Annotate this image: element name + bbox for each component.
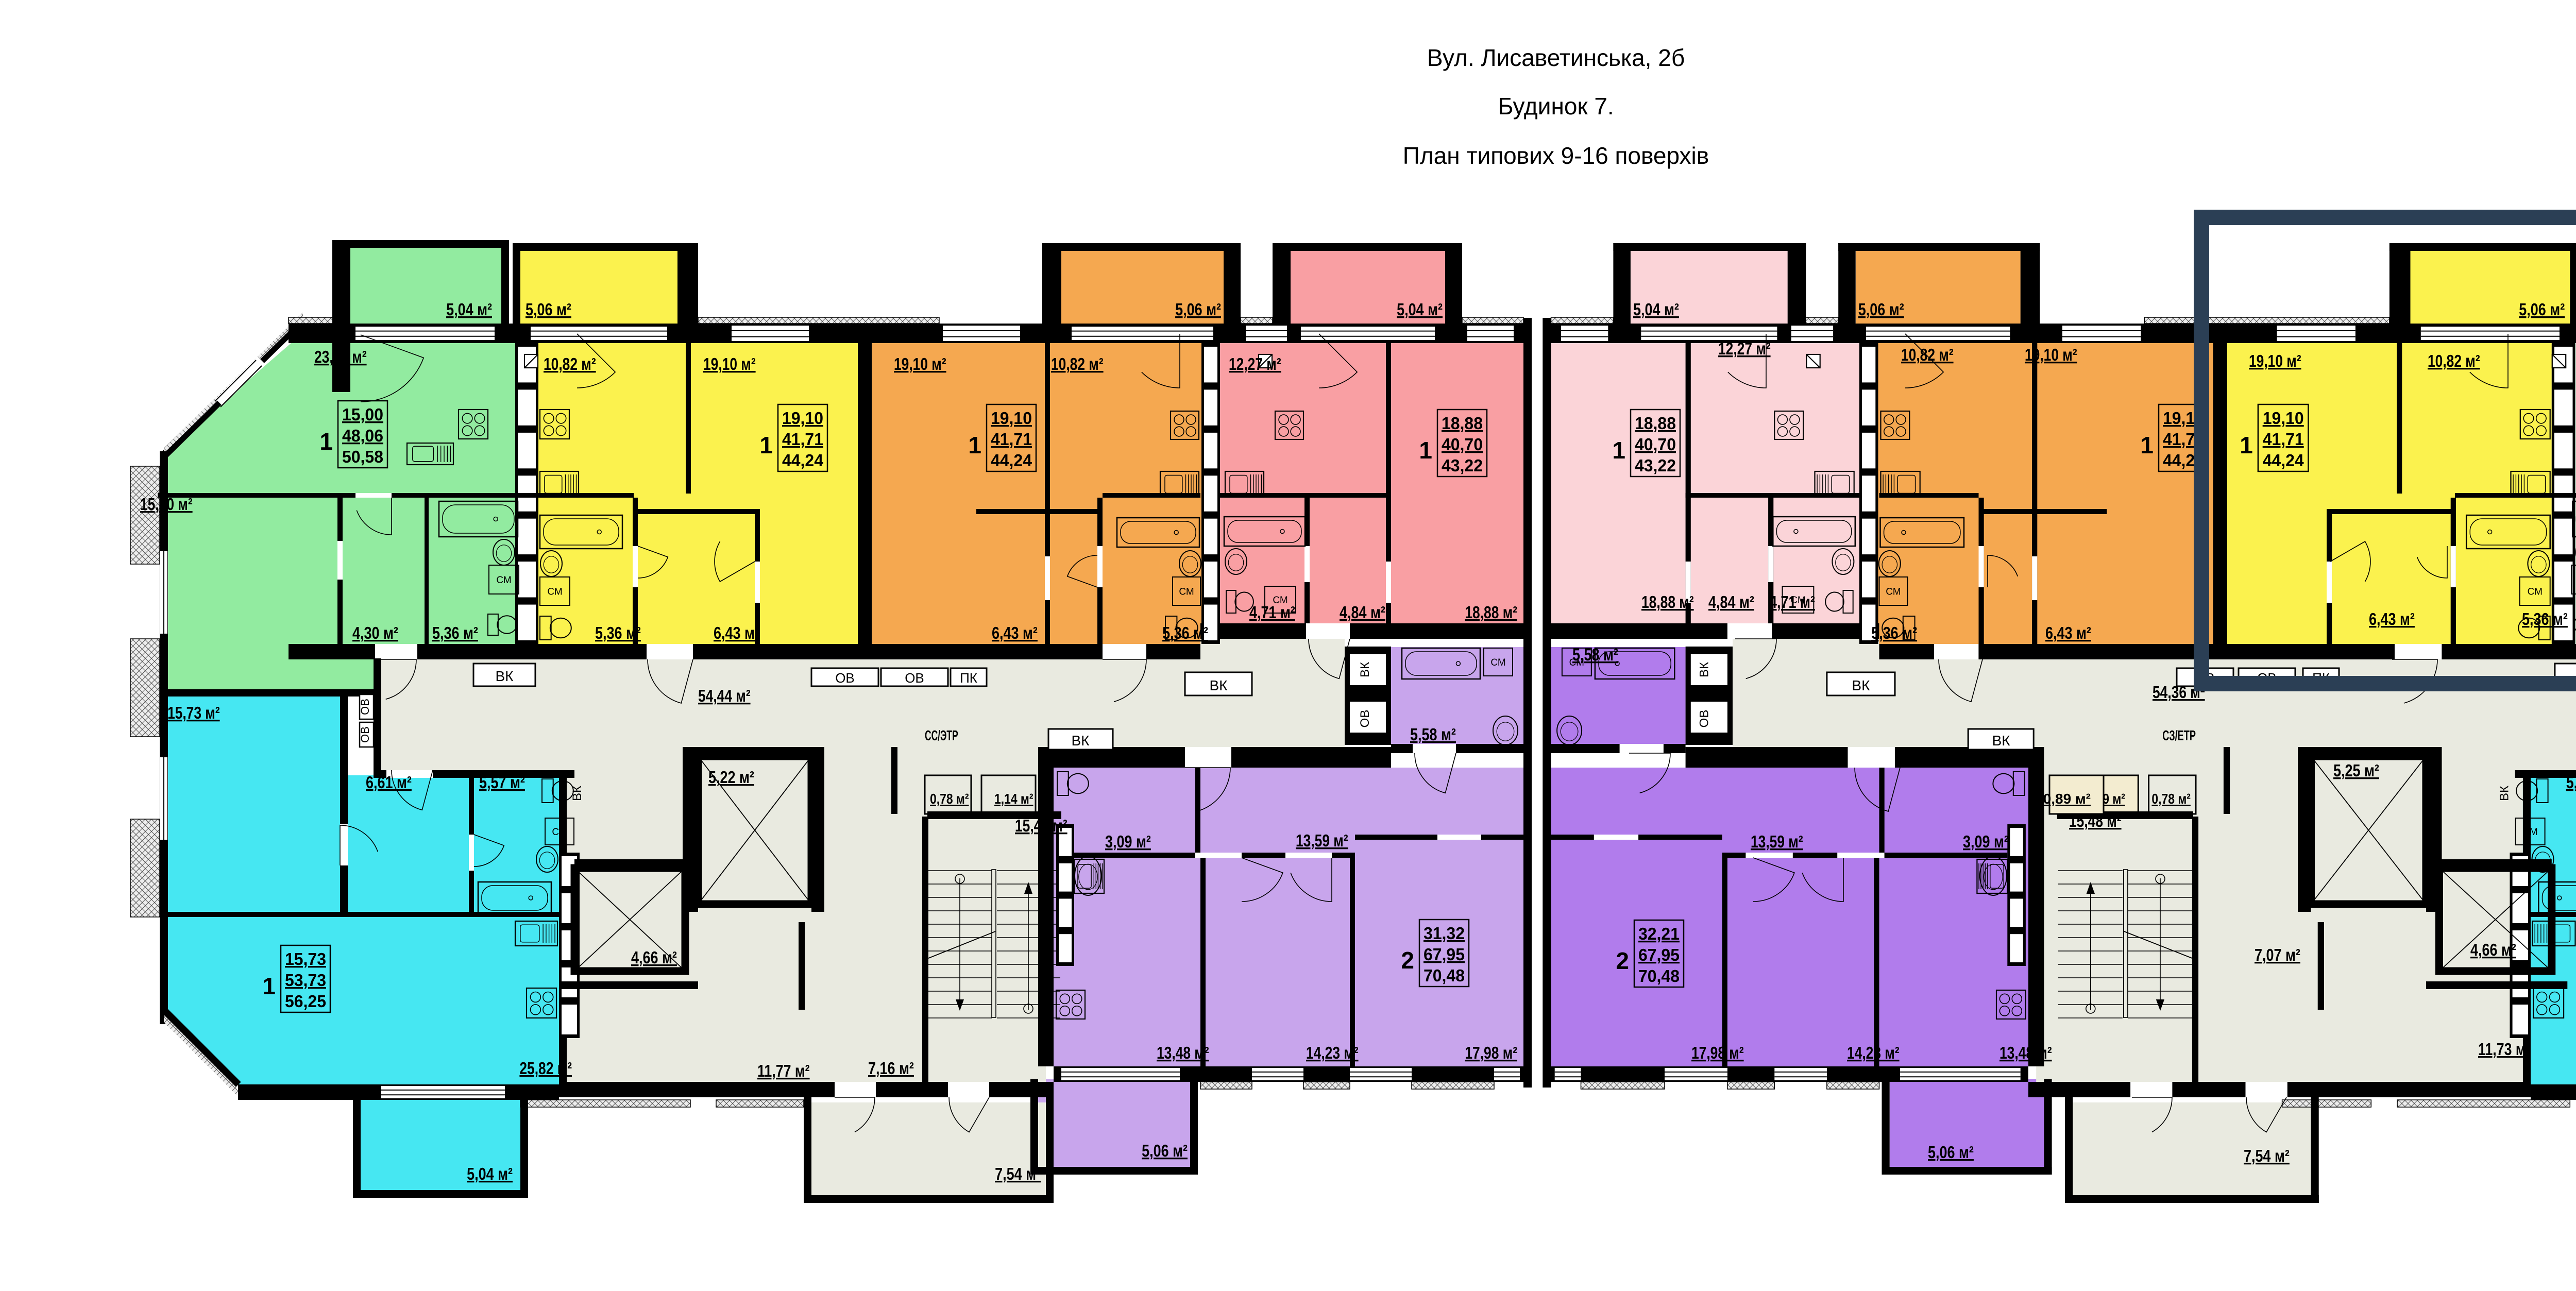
svg-text:5,36 м²: 5,36 м² [1162,623,1208,642]
svg-text:5,22 м²: 5,22 м² [708,768,754,787]
svg-text:5,36 м²: 5,36 м² [2522,609,2568,628]
svg-text:18,88: 18,88 [1442,414,1483,433]
svg-text:1: 1 [1419,437,1432,464]
svg-text:5,57 м²: 5,57 м² [2566,773,2576,792]
svg-text:18,88 м²: 18,88 м² [1465,603,1517,622]
svg-text:ВК: ВК [1852,677,1870,693]
svg-text:5,57 м²: 5,57 м² [479,773,525,792]
svg-text:4,71 м²: 4,71 м² [1249,603,1295,622]
svg-text:54,44 м²: 54,44 м² [698,686,751,705]
svg-text:ОВ: ОВ [835,670,855,686]
svg-text:ВК: ВК [1210,677,1228,693]
svg-text:1: 1 [968,432,981,458]
svg-text:СС/ЭТР: СС/ЭТР [925,727,958,743]
svg-text:19,10: 19,10 [782,409,823,428]
svg-text:7,54 м²: 7,54 м² [995,1164,1041,1183]
svg-text:41,71: 41,71 [991,430,1032,449]
svg-text:6,43 м²: 6,43 м² [992,623,1038,642]
svg-text:ОВ: ОВ [359,726,371,743]
svg-text:53,73: 53,73 [285,971,326,990]
svg-text:44,24: 44,24 [991,451,1032,470]
svg-text:ОВ: ОВ [905,670,924,686]
svg-text:7,07 м²: 7,07 м² [2255,945,2300,964]
svg-text:5,06 м²: 5,06 м² [1928,1143,1974,1162]
svg-text:40,70: 40,70 [1635,435,1676,454]
svg-text:0,78 м²: 0,78 м² [2151,791,2191,807]
svg-text:10,82 м²: 10,82 м² [1901,345,1954,364]
svg-text:3,09 м²: 3,09 м² [1105,832,1151,851]
svg-text:СМ: СМ [547,587,562,598]
svg-text:5,04 м²: 5,04 м² [467,1164,513,1183]
svg-text:13,48 м²: 13,48 м² [1999,1043,2052,1062]
svg-text:12,27 м²: 12,27 м² [1229,354,1281,373]
svg-text:6,61 м²: 6,61 м² [366,773,412,792]
svg-text:25,82 м²: 25,82 м² [519,1059,572,1078]
svg-text:6,43 м²: 6,43 м² [714,623,759,642]
svg-text:19,10 м²: 19,10 м² [2249,351,2301,370]
svg-text:Будинок 7.: Будинок 7. [1498,93,1614,120]
svg-text:41,71: 41,71 [2263,430,2304,449]
svg-text:ВК: ВК [2498,786,2512,801]
svg-text:5,25 м²: 5,25 м² [2333,761,2379,780]
svg-text:5,06 м²: 5,06 м² [2519,300,2565,319]
svg-text:19,10 м²: 19,10 м² [2025,345,2077,364]
svg-text:ВК: ВК [1072,733,1090,749]
svg-text:67,95: 67,95 [1423,945,1465,964]
svg-text:14,23 м²: 14,23 м² [1306,1043,1359,1062]
svg-text:5,36 м²: 5,36 м² [1871,623,1917,642]
svg-text:СЗ/ЕТР: СЗ/ЕТР [2162,727,2196,743]
svg-text:0,78 м²: 0,78 м² [930,791,969,807]
svg-text:1: 1 [1612,437,1625,464]
svg-text:44,24: 44,24 [782,451,824,470]
svg-text:18,88: 18,88 [1635,414,1676,433]
svg-text:ВК: ВК [570,786,584,801]
svg-text:ВК: ВК [1992,733,2011,749]
svg-text:17,98 м²: 17,98 м² [1691,1043,1744,1062]
svg-text:15,73 м²: 15,73 м² [167,703,220,722]
svg-text:43,22: 43,22 [1442,456,1483,475]
svg-text:41,71: 41,71 [782,430,823,449]
svg-text:11,73 м²: 11,73 м² [2478,1040,2531,1059]
svg-text:43,22: 43,22 [1635,456,1676,475]
svg-text:1: 1 [759,432,773,458]
svg-text:19,10 м²: 19,10 м² [894,354,946,373]
svg-text:13,59 м²: 13,59 м² [1296,831,1348,850]
svg-text:5,06 м²: 5,06 м² [1175,300,1221,319]
svg-text:1,14 м²: 1,14 м² [994,791,1033,807]
svg-text:СМ: СМ [2522,827,2537,838]
svg-text:Вул. Лисаветинська, 2б: Вул. Лисаветинська, 2б [1427,44,1685,71]
svg-text:6,43 м²: 6,43 м² [2369,609,2415,628]
svg-text:7,16 м²: 7,16 м² [868,1059,914,1078]
svg-text:67,95: 67,95 [1638,945,1680,964]
svg-text:31,32: 31,32 [1423,924,1465,943]
svg-text:ВК: ВК [1697,662,1711,677]
svg-text:ОВ: ОВ [359,699,371,715]
svg-text:СМ: СМ [496,575,511,586]
svg-text:15,73: 15,73 [285,949,326,969]
svg-text:5,58 м²: 5,58 м² [1410,725,1456,744]
svg-text:19,10: 19,10 [991,409,1032,428]
svg-text:ОВ: ОВ [1358,710,1372,728]
svg-text:5,04 м²: 5,04 м² [446,300,492,319]
svg-text:7,54 м²: 7,54 м² [2244,1146,2290,1165]
svg-text:12,27 м²: 12,27 м² [1718,339,1771,358]
svg-text:3,09 м²: 3,09 м² [1963,832,2009,851]
svg-text:15,00: 15,00 [342,405,383,424]
svg-text:13,59 м²: 13,59 м² [1751,832,1803,851]
svg-text:19,10: 19,10 [2263,409,2304,428]
svg-text:5,36 м²: 5,36 м² [432,623,478,642]
svg-text:5,06 м²: 5,06 м² [1858,300,1904,319]
svg-text:СМ: СМ [1179,587,1194,598]
svg-text:44,24: 44,24 [2263,451,2304,470]
svg-text:15,48 м²: 15,48 м² [1015,816,1067,835]
svg-text:4,71 м²: 4,71 м² [1769,592,1815,611]
svg-text:СМ: СМ [552,827,567,838]
svg-text:СМ: СМ [2528,587,2543,598]
svg-text:1: 1 [2240,432,2253,458]
svg-text:4,84 м²: 4,84 м² [1340,603,1385,622]
svg-text:5,06 м²: 5,06 м² [526,300,571,319]
svg-text:10,82 м²: 10,82 м² [2428,351,2480,370]
svg-text:1: 1 [262,973,276,999]
svg-text:СМ: СМ [1490,657,1505,668]
svg-text:ВК: ВК [1358,662,1372,677]
svg-text:План типових 9-16 поверхів: План типових 9-16 поверхів [1403,142,1709,169]
svg-text:10,82 м²: 10,82 м² [1051,354,1104,373]
svg-text:1: 1 [319,428,333,455]
svg-text:ОВ: ОВ [1697,710,1711,728]
svg-text:5,04 м²: 5,04 м² [1633,300,1679,319]
svg-text:13,48 м²: 13,48 м² [1157,1043,1209,1062]
svg-text:17,98 м²: 17,98 м² [1465,1043,1517,1062]
svg-text:4,66 м²: 4,66 м² [2470,940,2516,959]
svg-text:ВК: ВК [496,668,514,684]
svg-text:4,66 м²: 4,66 м² [631,948,677,967]
svg-text:14,23 м²: 14,23 м² [1847,1043,1900,1062]
svg-text:5,04 м²: 5,04 м² [1397,300,1443,319]
svg-text:19,10 м²: 19,10 м² [703,354,756,373]
svg-text:СМ: СМ [1886,587,1901,598]
svg-text:ПК: ПК [960,670,977,686]
svg-text:70,48: 70,48 [1423,966,1465,985]
svg-text:5,58 м²: 5,58 м² [1572,645,1618,664]
svg-text:5,06 м²: 5,06 м² [1142,1141,1188,1160]
svg-text:5,36 м²: 5,36 м² [595,623,641,642]
svg-text:32,21: 32,21 [1638,924,1680,943]
svg-text:23,40 м²: 23,40 м² [314,347,367,366]
svg-text:1: 1 [2140,432,2154,458]
svg-text:48,06: 48,06 [342,426,383,445]
svg-text:6,43 м²: 6,43 м² [2045,623,2091,642]
svg-text:2: 2 [1616,947,1629,974]
svg-text:56,25: 56,25 [285,992,326,1011]
svg-text:11,77 м²: 11,77 м² [757,1061,810,1080]
svg-text:40,70: 40,70 [1442,435,1483,454]
svg-text:0,89 м²: 0,89 м² [2043,791,2091,807]
svg-text:4,30 м²: 4,30 м² [352,623,398,642]
svg-text:50,58: 50,58 [342,447,383,466]
svg-text:70,48: 70,48 [1638,966,1680,986]
svg-text:15,00 м²: 15,00 м² [140,495,193,514]
svg-text:10,82 м²: 10,82 м² [544,354,596,373]
svg-text:18,88 м²: 18,88 м² [1641,592,1694,611]
svg-text:2: 2 [1401,947,1414,974]
svg-text:4,84 м²: 4,84 м² [1708,592,1754,611]
